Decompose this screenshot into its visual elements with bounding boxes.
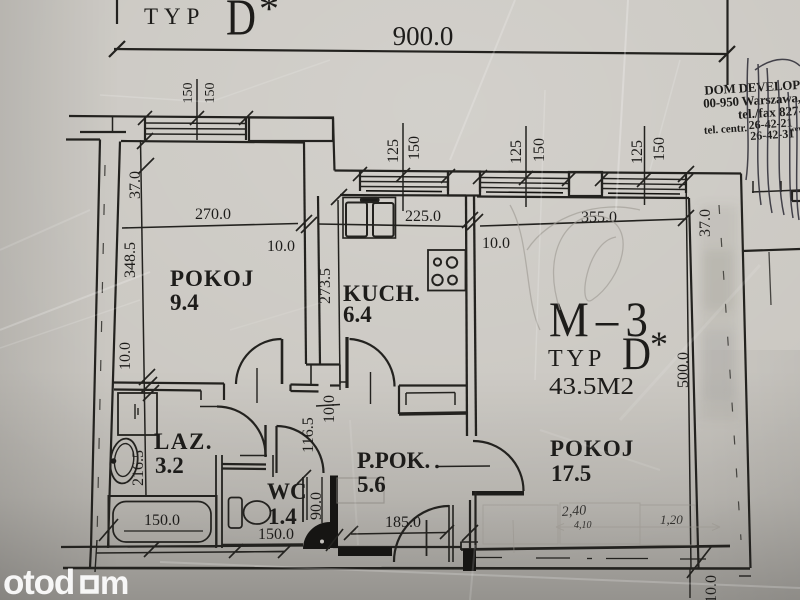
svg-text:185.0: 185.0 [385,514,421,531]
svg-text:10.0: 10.0 [267,238,295,255]
svg-text:270.0: 270.0 [195,206,231,223]
svg-text:LAZ.: LAZ. [154,429,213,454]
svg-text:*: * [650,324,668,364]
svg-text:125: 125 [508,140,525,164]
svg-text:m: m [100,564,128,600]
svg-text:10.0: 10.0 [321,395,338,423]
svg-text:216.5: 216.5 [130,450,147,486]
svg-text:*: * [259,0,279,31]
svg-text:9.4: 9.4 [170,290,199,315]
svg-text:3.2: 3.2 [155,453,184,478]
svg-text:1,20: 1,20 [660,512,683,527]
svg-text:225.0: 225.0 [405,208,441,225]
svg-text:150.0: 150.0 [144,512,180,529]
svg-text:125: 125 [385,139,402,163]
svg-text:D: D [226,0,256,47]
svg-text:6.4: 6.4 [343,302,372,327]
svg-text:116.5: 116.5 [300,417,317,452]
svg-text:otod: otod [3,563,74,600]
svg-text:37.0: 37.0 [127,171,144,199]
svg-text:TYP: TYP [144,4,205,29]
svg-text:4,10: 4,10 [574,520,592,531]
svg-text:150: 150 [531,138,548,162]
svg-text:P.POK.: P.POK. [357,448,430,473]
svg-text:150: 150 [406,136,423,160]
svg-text:273.5: 273.5 [317,268,334,304]
svg-text:1.4: 1.4 [268,504,297,529]
svg-text:26-42-31: 26-42-31 [750,126,795,143]
svg-text:348.5: 348.5 [122,242,139,278]
svg-text:WC: WC [267,479,307,504]
svg-text:900.0: 900.0 [393,21,454,51]
svg-text:17.5: 17.5 [551,461,591,486]
svg-text:10.0: 10.0 [703,575,720,600]
svg-text:10.0: 10.0 [482,235,510,252]
svg-text:90.0: 90.0 [308,492,325,520]
svg-text:10.0: 10.0 [117,342,134,370]
svg-text:2,40: 2,40 [561,503,586,520]
svg-text:POKOJ: POKOJ [170,266,254,291]
svg-text:D: D [622,328,651,380]
svg-text:5.6: 5.6 [357,472,386,497]
svg-text:43.5M2: 43.5M2 [549,374,634,400]
svg-text:TYP: TYP [548,346,605,372]
svg-text:125: 125 [629,140,646,164]
